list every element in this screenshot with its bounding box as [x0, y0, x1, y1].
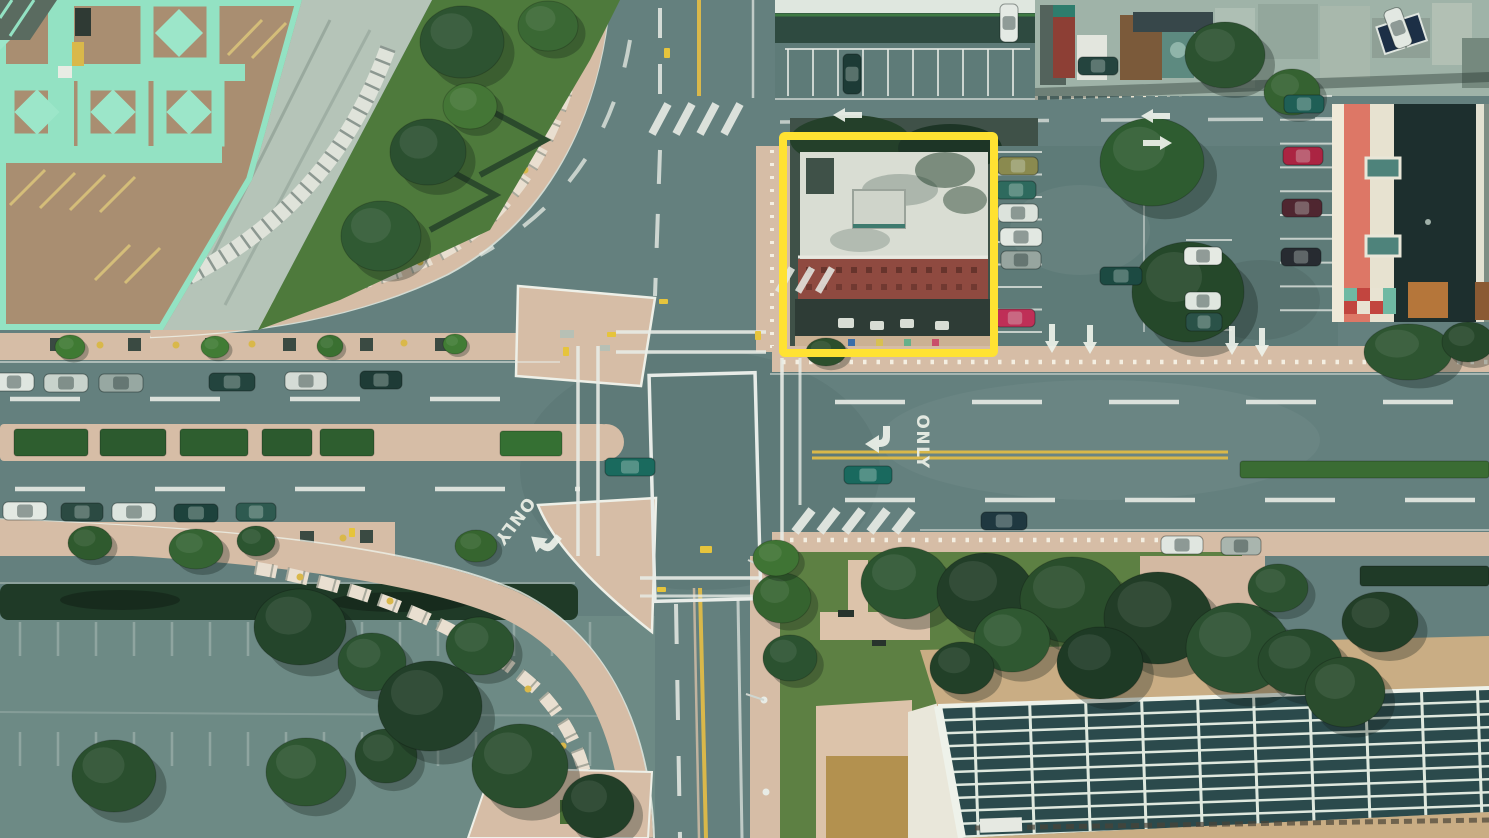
median-hedge	[14, 429, 88, 456]
checker-strip	[1344, 288, 1396, 314]
car	[0, 373, 34, 391]
car	[1078, 57, 1118, 75]
rooftop-unit	[1408, 282, 1448, 318]
car	[1284, 95, 1324, 113]
car	[44, 374, 88, 392]
car	[996, 181, 1036, 199]
car	[1184, 247, 1222, 265]
car	[1283, 147, 1323, 165]
car	[995, 309, 1035, 327]
median-hedge	[100, 429, 166, 456]
median-hedge	[1240, 461, 1489, 478]
car	[1100, 267, 1142, 285]
car	[99, 374, 143, 392]
car	[1000, 4, 1018, 42]
car	[1000, 228, 1042, 246]
median-hedge	[320, 429, 374, 456]
car	[1186, 313, 1222, 331]
aerial-photo: ONLY ONLY	[0, 0, 1489, 838]
car	[843, 54, 861, 94]
car	[3, 502, 47, 520]
service-truck	[980, 817, 1022, 832]
car	[236, 503, 276, 521]
car	[1001, 251, 1041, 269]
car	[981, 512, 1027, 530]
car	[360, 371, 402, 389]
car	[112, 503, 156, 521]
car	[174, 504, 218, 522]
median-hedge	[180, 429, 248, 456]
median-hedge	[500, 431, 562, 456]
car	[1282, 199, 1322, 217]
awning-building	[775, 0, 1035, 43]
only-marking-east: ONLY	[912, 414, 932, 469]
median-hedge	[1360, 566, 1489, 586]
median-hedge	[262, 429, 312, 456]
car	[285, 372, 327, 390]
car	[1281, 248, 1321, 266]
car	[844, 466, 892, 484]
small-parking-lot	[775, 43, 1035, 99]
north-island	[516, 286, 655, 386]
deck-cart	[72, 42, 84, 66]
car	[209, 373, 255, 391]
car	[1221, 537, 1261, 555]
khaki-roof	[826, 756, 908, 838]
car	[998, 157, 1038, 175]
screenshot-root: ONLY ONLY	[0, 0, 1489, 838]
deck-vehicle	[75, 8, 91, 36]
car	[1161, 536, 1203, 554]
car	[605, 458, 655, 476]
car	[1185, 292, 1221, 310]
car	[61, 503, 103, 521]
coral-building	[1332, 104, 1489, 322]
car	[998, 204, 1038, 222]
